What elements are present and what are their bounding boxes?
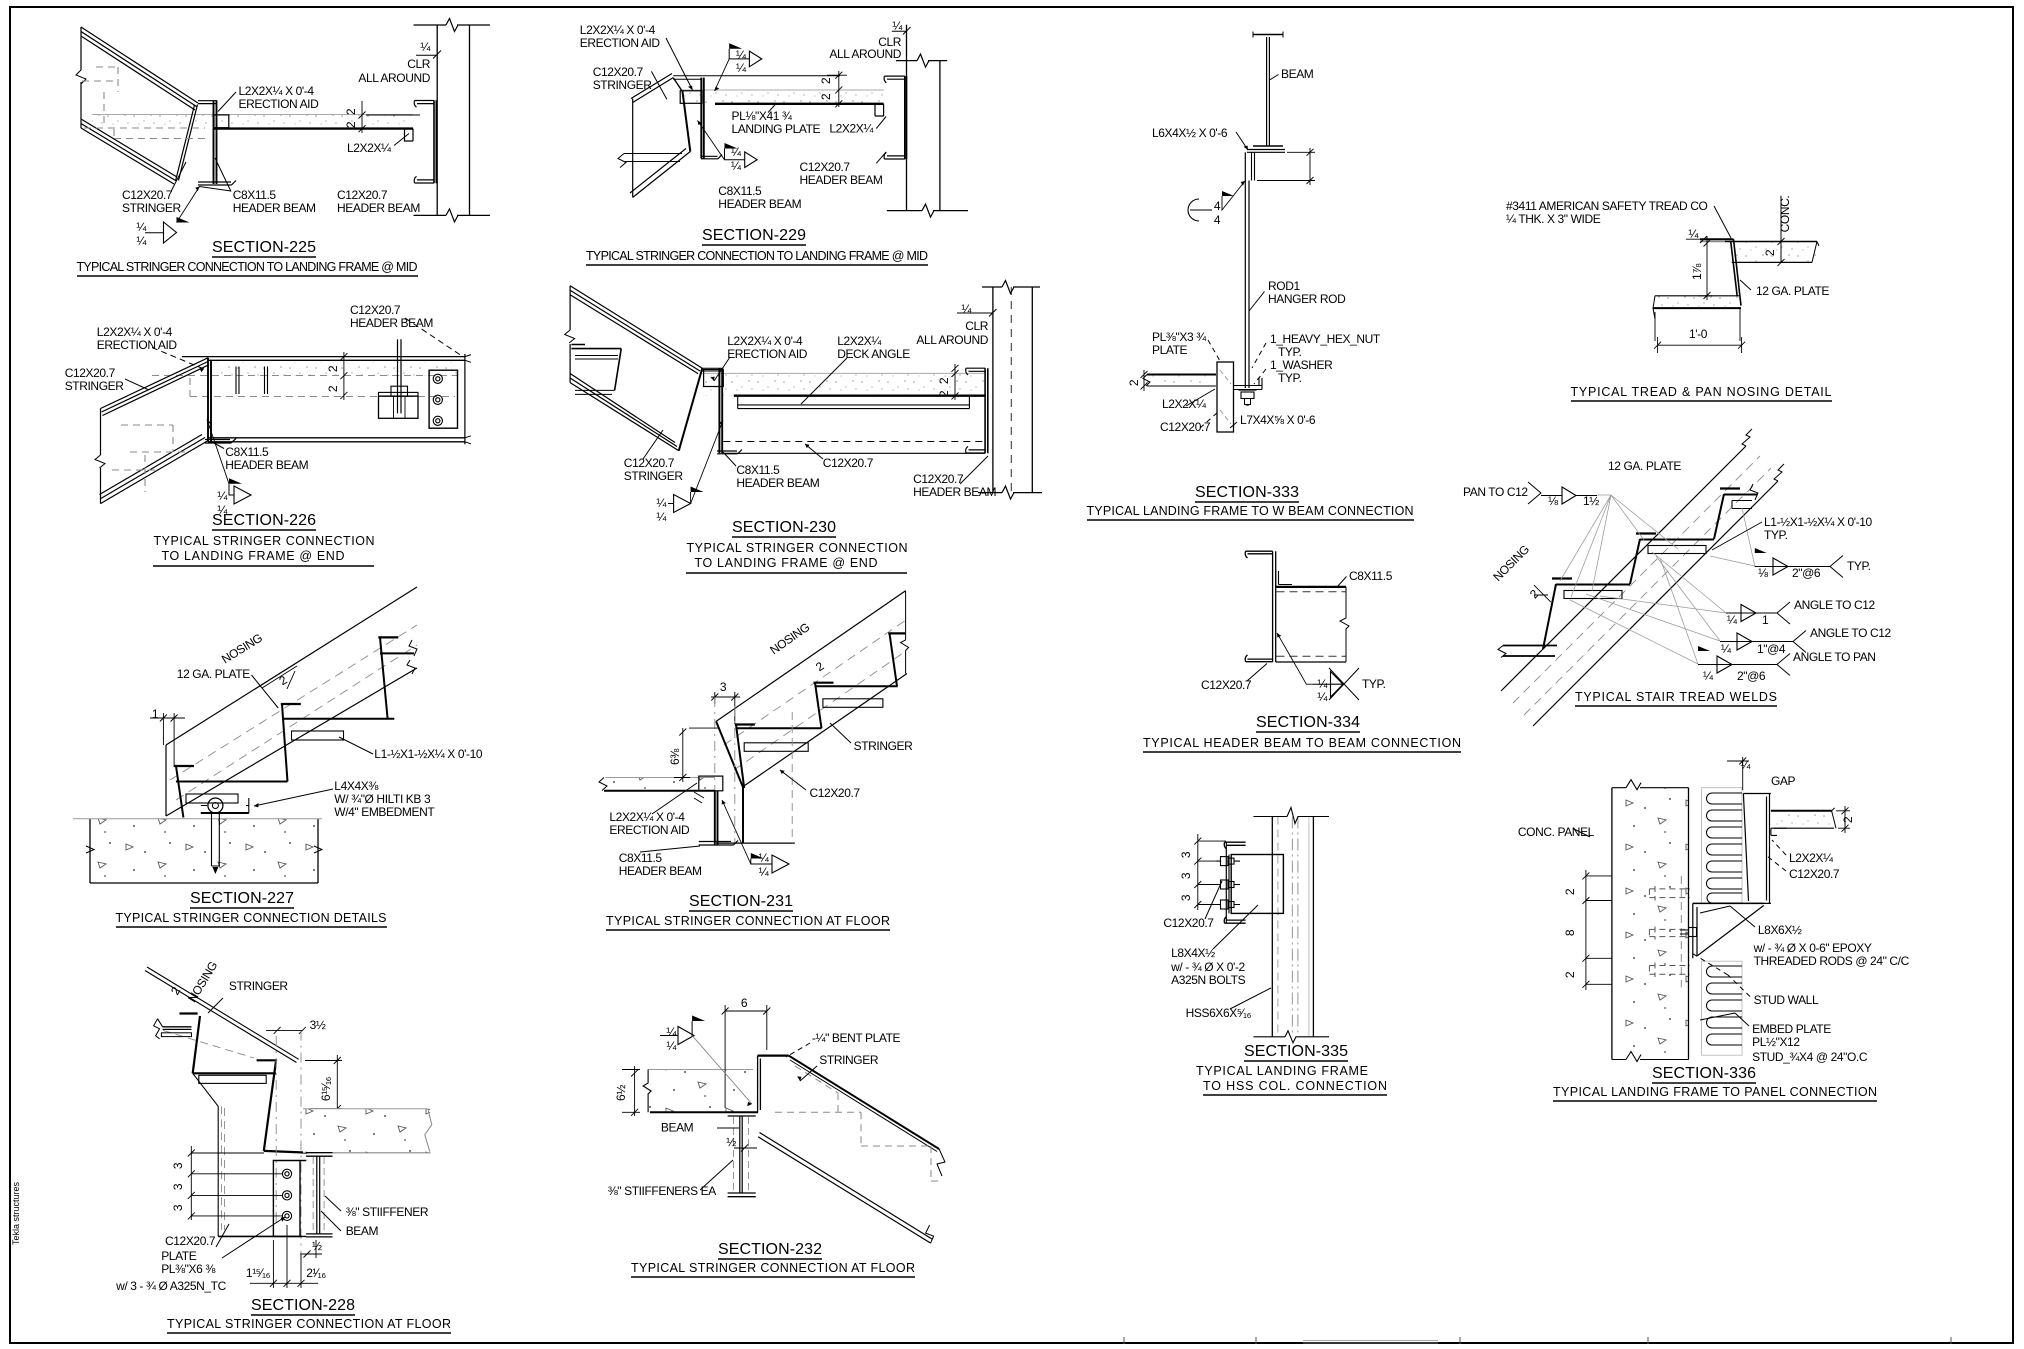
svg-text:¼: ¼: [217, 489, 228, 503]
svg-text:C12X20.7: C12X20.7: [1163, 916, 1214, 930]
svg-text:SECTION-230: SECTION-230: [732, 519, 836, 536]
svg-text:6⅜: 6⅜: [668, 748, 682, 765]
svg-text:¼: ¼: [1727, 613, 1738, 627]
svg-text:12 GA. PLATE: 12 GA. PLATE: [1756, 284, 1829, 298]
svg-text:2: 2: [1763, 249, 1777, 256]
svg-text:¼: ¼: [731, 145, 742, 159]
svg-text:¼: ¼: [656, 510, 667, 524]
svg-text:L1-½X1-½X¼ X 0'-10: L1-½X1-½X¼ X 0'-10: [1764, 515, 1873, 529]
svg-text:6: 6: [741, 996, 748, 1010]
svg-text:¼: ¼: [736, 61, 747, 75]
svg-text:½: ½: [312, 1239, 322, 1253]
svg-text:¼: ¼: [656, 496, 667, 510]
svg-text:L2X2X¼: L2X2X¼: [1789, 851, 1834, 865]
svg-text:ERECTION AID: ERECTION AID: [609, 823, 690, 837]
svg-text:L2X2X¼: L2X2X¼: [837, 334, 882, 348]
svg-text:TYPICAL STRINGER CONNECTION TO: TYPICAL STRINGER CONNECTION TO LANDING F…: [586, 249, 928, 263]
svg-text:3: 3: [171, 1162, 185, 1169]
svg-text:L2X2X¼: L2X2X¼: [347, 141, 392, 155]
svg-text:TYPICAL STRINGER CONNECTION TO: TYPICAL STRINGER CONNECTION TO LANDING F…: [77, 260, 418, 274]
svg-text:ROD1: ROD1: [1268, 279, 1300, 293]
svg-text:DECK ANGLE: DECK ANGLE: [837, 347, 910, 361]
svg-text:L2X2X¼ X 0'-4: L2X2X¼ X 0'-4: [609, 810, 685, 824]
svg-text:2: 2: [1841, 816, 1855, 823]
svg-text:TYP.: TYP.: [1278, 371, 1302, 385]
svg-text:⅜" STIIFFENER: ⅜" STIIFFENER: [346, 1205, 429, 1219]
svg-text:2: 2: [819, 93, 833, 100]
svg-text:TYPICAL TREAD & PAN NOSING DET: TYPICAL TREAD & PAN NOSING DETAIL: [1571, 385, 1832, 399]
svg-text:L2X2X¼: L2X2X¼: [829, 122, 874, 136]
svg-text:1¹⁵⁄₁₆: 1¹⁵⁄₁₆: [246, 1266, 271, 1280]
svg-text:L2X2X¼ X 0'-4: L2X2X¼ X 0'-4: [239, 84, 315, 98]
svg-text:TYPICAL STRINGER CONNECTION DE: TYPICAL STRINGER CONNECTION DETAILS: [116, 911, 387, 925]
svg-text:C8X11.5: C8X11.5: [233, 188, 277, 202]
svg-text:HSS6X6X⁵⁄₁₆: HSS6X6X⁵⁄₁₆: [1186, 1006, 1252, 1020]
svg-text:STUD_¾X4 @ 24"O.C: STUD_¾X4 @ 24"O.C: [1752, 1050, 1868, 1064]
svg-text:2¹⁄₁₆: 2¹⁄₁₆: [306, 1266, 326, 1280]
svg-text:2: 2: [344, 121, 358, 128]
svg-text:TYP.: TYP.: [1278, 345, 1302, 359]
svg-text:C12X20.7: C12X20.7: [593, 65, 644, 79]
svg-text:L8X4X½: L8X4X½: [1171, 946, 1215, 960]
svg-text:6¹⁵⁄₁₆: 6¹⁵⁄₁₆: [319, 1076, 333, 1101]
svg-text:STRINGER: STRINGER: [122, 201, 182, 215]
svg-text:HEADER BEAM: HEADER BEAM: [233, 201, 316, 215]
svg-text:12 GA. PLATE: 12 GA. PLATE: [177, 667, 250, 681]
svg-text:¼: ¼: [1317, 690, 1328, 704]
svg-text:STRINGER: STRINGER: [854, 739, 914, 753]
svg-text:3½: 3½: [310, 1018, 326, 1032]
svg-text:2: 2: [937, 377, 951, 384]
svg-text:W/ ¾"Ø HILTI KB 3: W/ ¾"Ø HILTI KB 3: [334, 792, 431, 806]
svg-text:HEADER BEAM: HEADER BEAM: [619, 864, 702, 878]
svg-text:SECTION-228: SECTION-228: [251, 1297, 355, 1314]
svg-text:TO LANDING FRAME @ END: TO LANDING FRAME @ END: [162, 549, 345, 563]
svg-text:C8X11.5: C8X11.5: [718, 184, 762, 198]
svg-text:-¼" BENT PLATE: -¼" BENT PLATE: [812, 1031, 901, 1045]
svg-text:8: 8: [1563, 929, 1577, 936]
svg-text:SECTION-333: SECTION-333: [1195, 484, 1299, 501]
svg-text:¼: ¼: [736, 48, 747, 62]
svg-text:TYPICAL LANDING FRAME TO W BEA: TYPICAL LANDING FRAME TO W BEAM CONNECTI…: [1087, 504, 1414, 518]
svg-text:ALL AROUND: ALL AROUND: [829, 47, 901, 61]
svg-text:¼: ¼: [1740, 758, 1751, 772]
svg-text:Tekla structures: Tekla structures: [11, 1181, 21, 1245]
svg-text:¼: ¼: [666, 1039, 677, 1053]
svg-text:LANDING PLATE: LANDING PLATE: [732, 122, 821, 136]
svg-text:C12X20.7: C12X20.7: [1789, 867, 1840, 881]
svg-text:TO LANDING FRAME @ END: TO LANDING FRAME @ END: [695, 556, 878, 570]
svg-text:L2X2X¼: L2X2X¼: [1162, 397, 1207, 411]
svg-text:C12X20.7: C12X20.7: [65, 366, 116, 380]
svg-text:L2X2X¼ X 0'-4: L2X2X¼ X 0'-4: [580, 23, 656, 37]
svg-text:HEADER BEAM: HEADER BEAM: [225, 458, 308, 472]
svg-text:ANGLE TO C12: ANGLE TO C12: [1794, 598, 1876, 612]
svg-text:L1-½X1-½X¼ X 0'-10: L1-½X1-½X¼ X 0'-10: [374, 747, 483, 761]
svg-text:TYPICAL STRINGER CONNECTION AT: TYPICAL STRINGER CONNECTION AT FLOOR: [606, 914, 890, 928]
svg-text:⅛: ⅛: [1548, 494, 1559, 508]
svg-text:ERECTION AID: ERECTION AID: [580, 36, 661, 50]
svg-text:A325N BOLTS: A325N BOLTS: [1171, 973, 1245, 987]
svg-text:¼: ¼: [759, 865, 770, 879]
svg-text:1"@4: 1"@4: [1757, 642, 1786, 656]
svg-text:2: 2: [819, 77, 833, 84]
svg-text:¼: ¼: [420, 40, 431, 54]
svg-text:1_WASHER: 1_WASHER: [1270, 358, 1333, 372]
svg-text:C12X20.7: C12X20.7: [165, 1234, 216, 1248]
svg-text:HEADER BEAM: HEADER BEAM: [800, 173, 883, 187]
svg-text:C8X11.5: C8X11.5: [1349, 569, 1393, 583]
svg-text:1: 1: [1762, 613, 1769, 627]
svg-text:C12X20.7: C12X20.7: [810, 786, 861, 800]
svg-text:BEAM: BEAM: [661, 1121, 694, 1135]
svg-text:ERECTION AID: ERECTION AID: [239, 97, 320, 111]
svg-text:SECTION-336: SECTION-336: [1652, 1065, 1756, 1082]
svg-text:C12X20.7: C12X20.7: [1201, 678, 1252, 692]
svg-text:C8X11.5: C8X11.5: [619, 851, 663, 865]
svg-text:TYPICAL STRINGER CONNECTION AT: TYPICAL STRINGER CONNECTION AT FLOOR: [167, 1317, 451, 1331]
svg-text:SECTION-231: SECTION-231: [689, 893, 793, 910]
svg-text:¼: ¼: [1721, 642, 1732, 656]
svg-text:THREADED RODS @ 24" C/C: THREADED RODS @ 24" C/C: [1754, 954, 1910, 968]
svg-text:HANGER ROD: HANGER ROD: [1268, 292, 1346, 306]
svg-text:PL⅜"X6 ⅜: PL⅜"X6 ⅜: [161, 1262, 216, 1276]
svg-text:L6X4X½ X 0'-6: L6X4X½ X 0'-6: [1152, 126, 1228, 140]
svg-text:ALL AROUND: ALL AROUND: [916, 333, 988, 347]
svg-text:C8X11.5: C8X11.5: [225, 445, 269, 459]
svg-text:STRINGER: STRINGER: [65, 379, 125, 393]
svg-text:3: 3: [171, 1204, 185, 1211]
svg-text:1⅞: 1⅞: [1690, 263, 1704, 280]
svg-text:EMBED PLATE: EMBED PLATE: [1752, 1022, 1831, 1036]
svg-text:C12X20.7: C12X20.7: [337, 188, 388, 202]
svg-text:HEADER BEAM: HEADER BEAM: [337, 201, 420, 215]
svg-text:STRINGER: STRINGER: [229, 979, 289, 993]
svg-text:¼: ¼: [759, 851, 770, 865]
svg-text:HEADER BEAM: HEADER BEAM: [736, 476, 819, 490]
svg-text:GAP: GAP: [1771, 774, 1796, 788]
svg-text:3: 3: [1179, 872, 1193, 879]
svg-text:ALL AROUND: ALL AROUND: [358, 71, 430, 85]
svg-text:¼: ¼: [1317, 677, 1328, 691]
svg-text:SECTION-225: SECTION-225: [212, 239, 316, 256]
svg-text:2: 2: [326, 365, 340, 372]
svg-text:HEADER BEAM: HEADER BEAM: [718, 197, 801, 211]
svg-text:PL⅜"X3 ¾: PL⅜"X3 ¾: [1152, 330, 1207, 344]
svg-text:CLR: CLR: [407, 57, 431, 71]
svg-text:W/4" EMBEDMENT: W/4" EMBEDMENT: [334, 805, 435, 819]
svg-text:¼: ¼: [666, 1025, 677, 1039]
svg-text:C12X20.7: C12X20.7: [122, 188, 173, 202]
svg-text:¼: ¼: [136, 234, 147, 248]
svg-text:TYPICAL LANDING FRAME TO PANEL: TYPICAL LANDING FRAME TO PANEL CONNECTIO…: [1553, 1085, 1877, 1099]
svg-text:⅛: ⅛: [1758, 566, 1769, 580]
svg-text:3: 3: [171, 1183, 185, 1190]
svg-text:C12X20.7: C12X20.7: [350, 303, 401, 317]
svg-text:w/ - ¾ Ø X 0'-2: w/ - ¾ Ø X 0'-2: [1170, 960, 1245, 974]
svg-text:SECTION-226: SECTION-226: [212, 512, 316, 529]
svg-text:CONC. PANEL: CONC. PANEL: [1518, 825, 1595, 839]
svg-text:½: ½: [726, 1135, 736, 1149]
svg-text:3: 3: [1179, 851, 1193, 858]
svg-text:ERECTION AID: ERECTION AID: [97, 338, 178, 352]
svg-text:TYPICAL STAIR TREAD WELDS: TYPICAL STAIR TREAD WELDS: [1575, 690, 1777, 704]
svg-text:TYPICAL STRINGER CONNECTION AT: TYPICAL STRINGER CONNECTION AT FLOOR: [631, 1261, 915, 1275]
svg-text:¼: ¼: [731, 159, 742, 173]
svg-text:PAN TO C12: PAN TO C12: [1463, 485, 1528, 499]
svg-text:¼: ¼: [961, 302, 972, 316]
svg-text:BEAM: BEAM: [1281, 67, 1314, 81]
svg-text:STRINGER: STRINGER: [593, 78, 653, 92]
svg-text:¼ THK. X 3" WIDE: ¼ THK. X 3" WIDE: [1506, 212, 1601, 226]
svg-text:C12X20.7: C12X20.7: [800, 160, 851, 174]
svg-text:PL½"X12: PL½"X12: [1752, 1035, 1800, 1049]
svg-text:C8X11.5: C8X11.5: [736, 463, 780, 477]
svg-text:CONC.: CONC.: [1778, 196, 1792, 233]
svg-text:C12X20.7: C12X20.7: [913, 472, 964, 486]
svg-text:2: 2: [1563, 971, 1577, 978]
svg-text:TYPICAL STRINGER CONNECTION: TYPICAL STRINGER CONNECTION: [154, 534, 375, 548]
svg-text:ERECTION AID: ERECTION AID: [727, 347, 808, 361]
svg-text:PL⅛"X41 ¾: PL⅛"X41 ¾: [732, 109, 793, 123]
svg-text:2"@6: 2"@6: [1792, 566, 1821, 580]
svg-text:STRINGER: STRINGER: [819, 1053, 879, 1067]
svg-text:CLR: CLR: [965, 319, 989, 333]
svg-text:SECTION-335: SECTION-335: [1244, 1043, 1348, 1060]
svg-text:1_HEAVY_HEX_NUT: 1_HEAVY_HEX_NUT: [1270, 332, 1381, 346]
svg-text:3: 3: [1179, 894, 1193, 901]
svg-text:SECTION-227: SECTION-227: [190, 890, 294, 907]
svg-text:BEAM: BEAM: [346, 1224, 379, 1238]
svg-text:w/ - ¾ Ø X 0-6" EPOXY: w/ - ¾ Ø X 0-6" EPOXY: [1753, 941, 1872, 955]
svg-text:C12X20.7: C12X20.7: [624, 456, 675, 470]
svg-text:w/ 3 - ¾ Ø A325N_TC: w/ 3 - ¾ Ø A325N_TC: [115, 1279, 227, 1293]
svg-text:ANGLE TO C12: ANGLE TO C12: [1810, 626, 1892, 640]
svg-text:2: 2: [344, 108, 358, 115]
svg-text:STRINGER: STRINGER: [624, 469, 684, 483]
svg-text:4: 4: [1214, 199, 1221, 213]
svg-text:4: 4: [1214, 213, 1221, 227]
svg-text:TO HSS COL. CONNECTION: TO HSS COL. CONNECTION: [1203, 1079, 1387, 1093]
svg-text:SECTION-334: SECTION-334: [1256, 714, 1360, 731]
svg-text:L7X4X⅝ X 0'-6: L7X4X⅝ X 0'-6: [1240, 413, 1316, 427]
svg-text:ANGLE TO PAN: ANGLE TO PAN: [1793, 650, 1876, 664]
svg-text:2: 2: [937, 390, 951, 397]
svg-text:C12X20.7: C12X20.7: [1160, 420, 1211, 434]
svg-text:SECTION-232: SECTION-232: [718, 1241, 822, 1258]
svg-text:¼: ¼: [1703, 669, 1714, 683]
svg-text:1½: 1½: [1583, 494, 1599, 508]
svg-text:HEADER BEAM: HEADER BEAM: [913, 485, 996, 499]
svg-text:2: 2: [1563, 888, 1577, 895]
svg-text:TYPICAL STRINGER CONNECTION: TYPICAL STRINGER CONNECTION: [687, 541, 908, 555]
svg-text:TYP.: TYP.: [1362, 677, 1386, 691]
svg-text:6½: 6½: [614, 1085, 628, 1101]
svg-text:TYP.: TYP.: [1764, 528, 1788, 542]
svg-text:2: 2: [326, 385, 340, 392]
svg-text:#3411 AMERICAN SAFETY TREAD CO: #3411 AMERICAN SAFETY TREAD CO: [1506, 199, 1707, 213]
svg-text:¼: ¼: [1688, 227, 1699, 241]
svg-text:L4X4X⅜: L4X4X⅜: [334, 779, 379, 793]
svg-text:3: 3: [720, 680, 727, 694]
svg-text:¼: ¼: [892, 19, 903, 33]
svg-text:1: 1: [152, 707, 159, 721]
svg-text:L2X2X¼ X 0'-4: L2X2X¼ X 0'-4: [97, 325, 173, 339]
svg-text:⅜" STIIFFENERS EA: ⅜" STIIFFENERS EA: [608, 1184, 717, 1198]
svg-text:1'-0: 1'-0: [1689, 327, 1708, 341]
svg-text:HEADER BEAM: HEADER BEAM: [350, 316, 433, 330]
svg-text:L2X2X¼ X 0'-4: L2X2X¼ X 0'-4: [727, 334, 803, 348]
svg-text:STUD WALL: STUD WALL: [1754, 993, 1819, 1007]
svg-text:TYP.: TYP.: [1847, 559, 1871, 573]
svg-text:TYPICAL HEADER BEAM TO BEAM CO: TYPICAL HEADER BEAM TO BEAM CONNECTION: [1143, 736, 1461, 750]
svg-text:TYPICAL LANDING FRAME: TYPICAL LANDING FRAME: [1196, 1064, 1368, 1078]
svg-text:SECTION-229: SECTION-229: [702, 227, 806, 244]
svg-text:PLATE: PLATE: [161, 1249, 197, 1263]
svg-text:C12X20.7: C12X20.7: [823, 456, 874, 470]
svg-text:PLATE: PLATE: [1152, 343, 1188, 357]
svg-text:2"@6: 2"@6: [1737, 669, 1766, 683]
svg-text:2: 2: [1127, 379, 1141, 386]
svg-text:¼: ¼: [136, 220, 147, 234]
svg-text:L8X6X½: L8X6X½: [1758, 923, 1802, 937]
svg-text:12 GA. PLATE: 12 GA. PLATE: [1608, 459, 1681, 473]
